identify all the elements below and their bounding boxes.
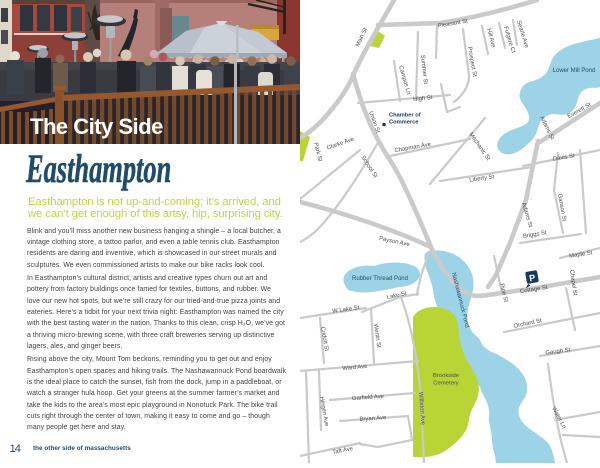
svg-text:Brookside: Brookside [433, 373, 460, 379]
svg-text:Rubber Thread Pond: Rubber Thread Pond [352, 276, 408, 282]
svg-text:Cemetery: Cemetery [433, 381, 459, 387]
svg-text:Chamber of: Chamber of [389, 113, 421, 119]
svg-text:Lower Mill Pond: Lower Mill Pond [553, 68, 596, 74]
svg-text:Commerce: Commerce [389, 120, 418, 126]
